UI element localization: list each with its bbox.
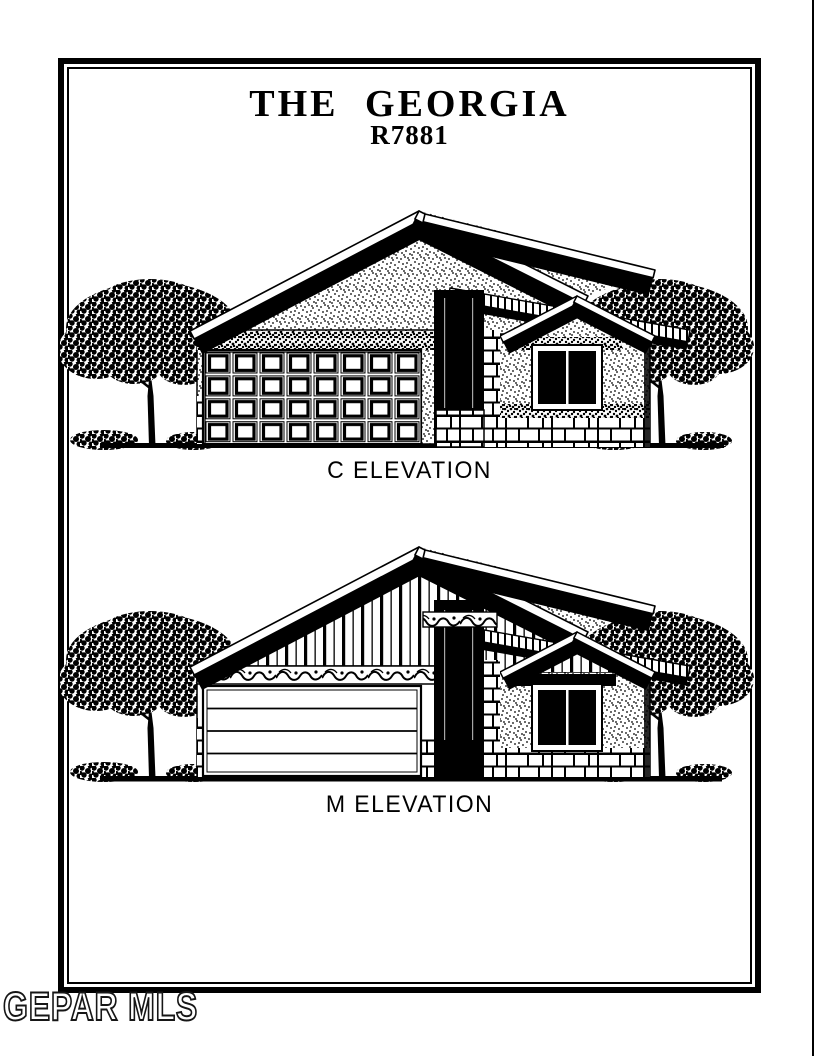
plan-sheet: THE GEORGIA R7881	[0, 0, 816, 1056]
m-elevation-drawing	[60, 520, 760, 792]
tower-chimney	[423, 600, 500, 777]
mls-watermark: GEPAR MLS	[3, 985, 198, 1030]
garage-door	[203, 686, 421, 776]
scan-artifact-line	[812, 0, 814, 1056]
plan-model-number: R7881	[58, 120, 761, 151]
c-elevation-drawing	[60, 185, 760, 455]
tower-frieze	[423, 612, 497, 627]
window	[532, 684, 602, 751]
m-elevation-label: M ELEVATION	[72, 791, 747, 819]
garage-door	[203, 350, 421, 444]
c-elevation-label: C ELEVATION	[72, 457, 747, 485]
window	[532, 345, 602, 410]
